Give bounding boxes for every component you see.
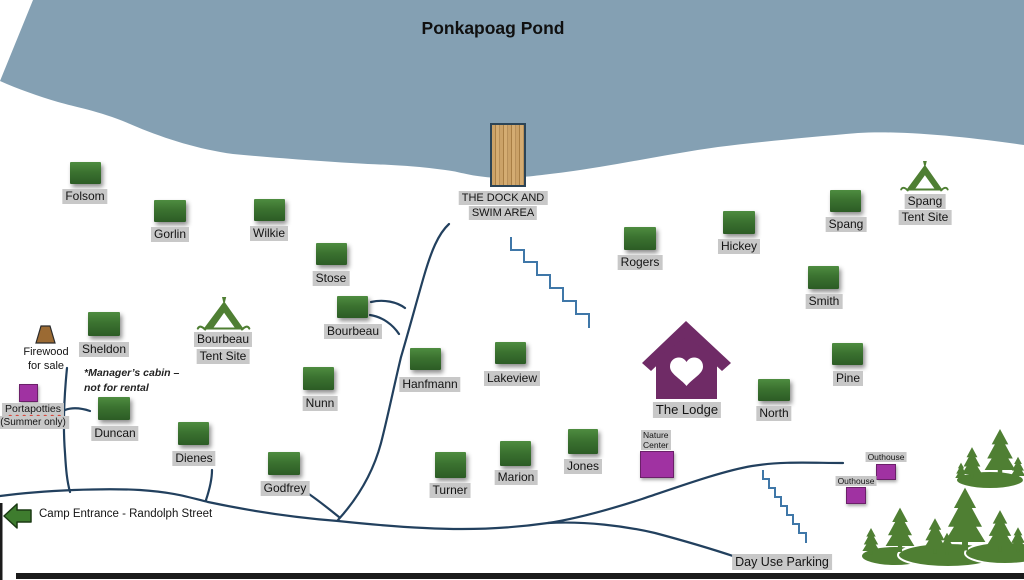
firewood-label-line2: for sale <box>25 359 67 373</box>
outhouse-upper-label: Outhouse <box>866 452 907 462</box>
cabin-bourbeau-label: Bourbeau <box>324 324 382 339</box>
outhouse-lower-icon <box>846 487 866 504</box>
cabin-nunn-label: Nunn <box>303 396 338 411</box>
cabin-stose <box>316 243 347 265</box>
cabin-jones-label: Jones <box>564 459 602 474</box>
manager-note-line1: *Manager’s cabin – <box>84 366 179 381</box>
outhouse-upper-icon <box>876 464 896 480</box>
cabin-turner <box>435 452 466 478</box>
portapotties-label-line2: (Summer only) <box>0 416 69 429</box>
cabin-spang <box>830 190 861 212</box>
bottom-edge-bar <box>16 573 1024 579</box>
dock-stairs <box>511 237 589 328</box>
cabin-sheldon-label: Sheldon <box>79 342 129 357</box>
spang-tent-icon <box>901 161 948 190</box>
cabin-bourbeau <box>337 296 368 318</box>
entrance-arrow-icon <box>4 504 31 528</box>
cabin-duncan-label: Duncan <box>91 426 138 441</box>
cabin-wilkie-label: Wilkie <box>250 226 288 241</box>
campground-map: Ponkapoag Pond THE DOCK AND SWIM AREA Fo… <box>0 0 1024 580</box>
tree-cluster-lower <box>861 488 1024 567</box>
spang-tent-site-label-line1: Spang <box>905 194 946 209</box>
cabin-nunn <box>303 367 334 390</box>
dock-label-line2: SWIM AREA <box>469 206 537 220</box>
firewood-label-line1: Firewood <box>20 345 71 359</box>
dock-icon <box>490 123 526 187</box>
outhouse-lower-label: Outhouse <box>836 476 877 486</box>
parking-stairs <box>763 470 806 543</box>
cabin-hickey-label: Hickey <box>718 239 760 254</box>
cabin-north-label: North <box>756 406 791 421</box>
cabin-gorlin-label: Gorlin <box>151 227 189 242</box>
cabin-dienes-label: Dienes <box>172 451 215 466</box>
cabin-hanfmann <box>410 348 441 370</box>
entrance-label: Camp Entrance - Randolph Street <box>36 507 215 521</box>
map-title: Ponkapoag Pond <box>422 18 565 39</box>
cabin-gorlin <box>154 200 186 222</box>
left-edge-bar <box>0 503 3 580</box>
spang-tent-site-label-line2: Tent Site <box>899 210 952 225</box>
cabin-folsom <box>70 162 101 184</box>
cabin-lakeview <box>495 342 526 364</box>
portapotties-label-line1: Portapotties <box>2 403 64 416</box>
dock-label-line1: THE DOCK AND <box>459 191 548 205</box>
cabin-north <box>758 379 790 401</box>
cabin-dienes <box>178 422 209 445</box>
bourbeau-tent-icon <box>198 297 249 330</box>
cabin-hanfmann-label: Hanfmann <box>399 377 460 392</box>
cabin-marion <box>500 441 531 466</box>
manager-note-line2: not for rental <box>84 381 149 396</box>
cabin-hickey <box>723 211 755 234</box>
tree-cluster-upper <box>955 429 1024 489</box>
cabin-folsom-label: Folsom <box>62 189 107 204</box>
cabin-smith <box>808 266 839 289</box>
cabin-stose-label: Stose <box>313 271 350 286</box>
cabin-smith-label: Smith <box>806 294 843 309</box>
cabin-turner-label: Turner <box>430 483 471 498</box>
map-base-graphics <box>0 0 1024 580</box>
cabin-rogers <box>624 227 656 250</box>
firewood-icon <box>36 326 55 343</box>
cabin-marion-label: Marion <box>495 470 538 485</box>
day-use-parking-label: Day Use Parking <box>732 554 832 570</box>
cabin-wilkie <box>254 199 285 221</box>
cabin-spang-label: Spang <box>826 217 867 232</box>
portapotties-icon <box>19 384 38 402</box>
nature-center-label-line2: Center <box>641 440 671 450</box>
cabin-pine-label: Pine <box>833 371 863 386</box>
cabin-duncan <box>98 397 130 420</box>
cabin-godfrey-label: Godfrey <box>261 481 310 496</box>
lodge-label: The Lodge <box>653 402 721 418</box>
cabin-godfrey <box>268 452 300 475</box>
nature-center-label-line1: Nature <box>641 430 671 440</box>
cabin-jones <box>568 429 598 454</box>
lodge-icon <box>642 321 731 399</box>
cabin-pine <box>832 343 863 365</box>
nature-center-icon <box>640 451 674 478</box>
cabin-rogers-label: Rogers <box>618 255 663 270</box>
cabin-lakeview-label: Lakeview <box>484 371 540 386</box>
cabin-sheldon <box>88 312 120 336</box>
bourbeau-tent-site-label-line2: Tent Site <box>197 349 250 364</box>
bourbeau-tent-site-label-line1: Bourbeau <box>194 332 252 347</box>
